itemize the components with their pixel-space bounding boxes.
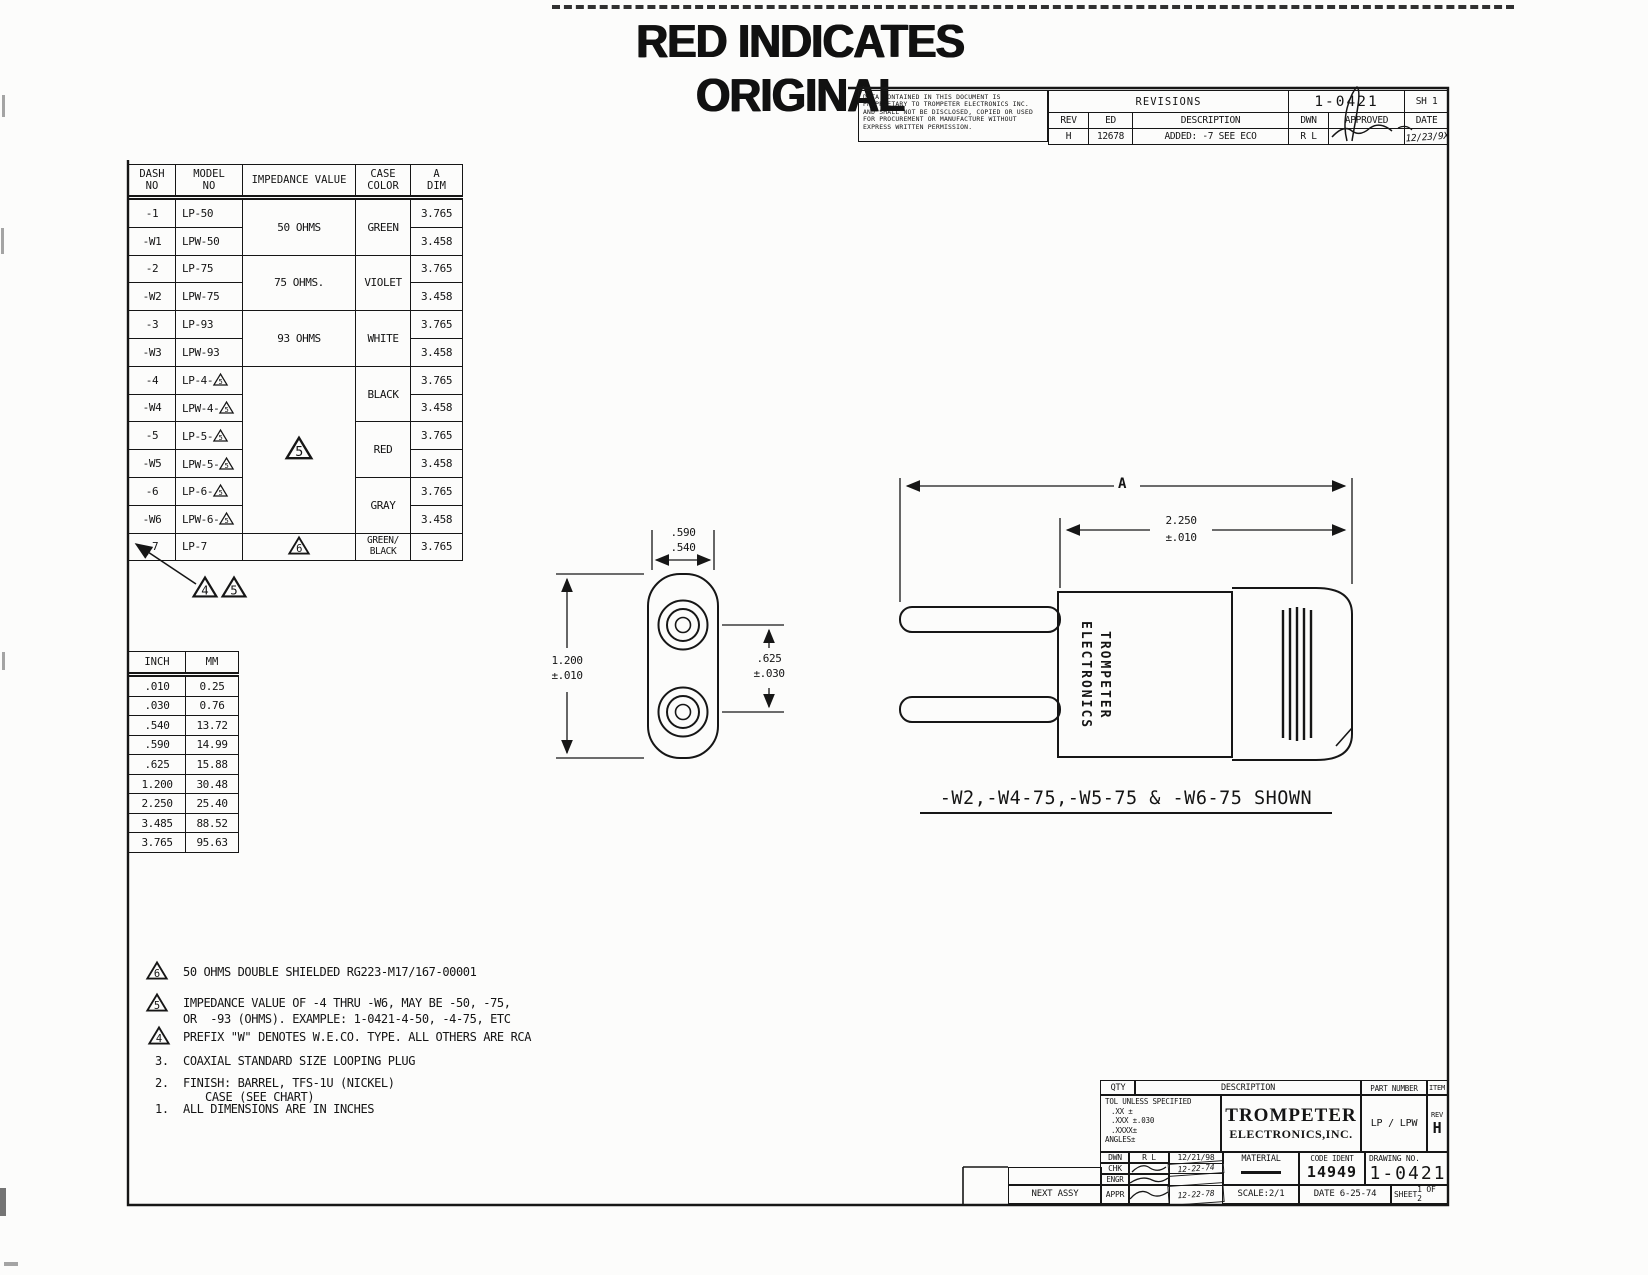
flag-triangle-5-icon: 5 bbox=[213, 373, 228, 386]
torn-edge-line bbox=[552, 5, 1514, 9]
dim-590: .590 bbox=[658, 526, 708, 539]
mm-cell: 95.63 bbox=[186, 833, 239, 853]
scan-artifact bbox=[4, 1262, 18, 1266]
model-cell: LPW-6-5 bbox=[176, 505, 243, 533]
rev-cell: REV H bbox=[1426, 1094, 1448, 1153]
model-cell: LP-4-5 bbox=[176, 366, 243, 394]
adim-cell: 3.765 bbox=[411, 477, 463, 505]
dash-cell: -W3 bbox=[129, 338, 176, 366]
table-row: 3.48588.52 bbox=[129, 813, 239, 833]
model-cell: LP-5-5 bbox=[176, 422, 243, 450]
dim-1200: 1.200 bbox=[543, 654, 591, 667]
code-ident-cell: CODE IDENT 14949 bbox=[1298, 1151, 1366, 1186]
impedance-cell: 93 OHMS bbox=[243, 311, 356, 367]
dash-cell: -W1 bbox=[129, 227, 176, 255]
col-header-inch: INCH bbox=[129, 652, 186, 675]
note-3-number: 3. bbox=[155, 1054, 169, 1068]
adim-cell: 3.765 bbox=[411, 366, 463, 394]
drawing-no-value: 1-0421 bbox=[1369, 1163, 1446, 1184]
shown-configurations-label: -W2,-W4-75,-W5-75 & -W6-75 SHOWN bbox=[920, 788, 1332, 814]
dash-cell: -3 bbox=[129, 311, 176, 339]
dash-cell: -W2 bbox=[129, 283, 176, 311]
drawing-no-cell: DRAWING NO. 1-0421 bbox=[1364, 1151, 1448, 1186]
table-row: .62515.88 bbox=[129, 755, 239, 775]
table-row: 2.25025.40 bbox=[129, 794, 239, 814]
col-header-dash: DASHNO bbox=[129, 165, 176, 198]
model-cell: LPW-75 bbox=[176, 283, 243, 311]
note-flag4: PREFIX "W" DENOTES W.E.CO. TYPE. ALL OTH… bbox=[183, 1030, 531, 1044]
dash-cell: -7 bbox=[129, 533, 176, 561]
date-cell: DATE 6-25-74 bbox=[1298, 1184, 1392, 1204]
model-cell: LPW-93 bbox=[176, 338, 243, 366]
eco-value: 12678 bbox=[1089, 129, 1133, 145]
table-row: 3.76595.63 bbox=[129, 833, 239, 853]
adim-cell: 3.458 bbox=[411, 394, 463, 422]
color-cell: BLACK bbox=[356, 366, 411, 422]
col-header: DATE bbox=[1405, 113, 1449, 129]
scan-artifact bbox=[1, 228, 4, 254]
table-row: -2 LP-75 75 OHMS. VIOLET 3.765 bbox=[129, 255, 463, 283]
col-header-adim: ADIM bbox=[411, 165, 463, 198]
table-header-row: DASHNO MODELNO IMPEDANCE VALUE CASECOLOR… bbox=[129, 165, 463, 198]
rev-value: H bbox=[1049, 129, 1089, 145]
appr-date: 12-22-78 bbox=[1167, 1182, 1224, 1206]
dash-cell: -1 bbox=[129, 198, 176, 228]
svg-text:4: 4 bbox=[201, 583, 208, 597]
svg-text:5: 5 bbox=[230, 583, 237, 597]
flag-triangle-4-icon: 4 bbox=[192, 576, 218, 598]
table-row: .59014.99 bbox=[129, 735, 239, 755]
color-cell: WHITE bbox=[356, 311, 411, 367]
inch-cell: .540 bbox=[129, 716, 186, 736]
adim-cell: 3.765 bbox=[411, 255, 463, 283]
model-cell: LP-7 bbox=[176, 533, 243, 561]
material-blank-line bbox=[1241, 1171, 1281, 1174]
impedance-cell: 5 bbox=[243, 366, 356, 533]
flag-triangle-5-icon: 5 bbox=[285, 436, 313, 460]
doc-number: 1-0421 bbox=[1289, 91, 1405, 113]
note-flag5-line1: IMPEDANCE VALUE OF -4 THRU -W6, MAY BE -… bbox=[183, 996, 511, 1010]
flag-triangle-5-icon: 5 bbox=[146, 993, 168, 1012]
inch-cell: .590 bbox=[129, 735, 186, 755]
col-header-case: CASECOLOR bbox=[356, 165, 411, 198]
flag-triangle-5-icon: 5 bbox=[213, 484, 228, 497]
mm-cell: 0.25 bbox=[186, 675, 239, 697]
model-cell: LPW-5-5 bbox=[176, 450, 243, 478]
impedance-cell: 50 OHMS bbox=[243, 198, 356, 256]
col-header: DESCRIPTION bbox=[1133, 113, 1289, 129]
rev-value: H bbox=[1433, 1119, 1442, 1137]
flag-triangle-5-icon: 5 bbox=[219, 457, 234, 470]
svg-text:5: 5 bbox=[219, 433, 223, 442]
inch-cell: 2.250 bbox=[129, 794, 186, 814]
flag-triangle-6-icon: 6 bbox=[288, 536, 310, 555]
appr-signature-cell bbox=[1128, 1184, 1170, 1204]
inch-cell: .030 bbox=[129, 696, 186, 716]
table-row: .0100.25 bbox=[129, 675, 239, 697]
company-block: TROMPETER ELECTRONICS,INC. bbox=[1220, 1094, 1362, 1153]
col-header: APPROVED bbox=[1329, 113, 1405, 129]
note-3: COAXIAL STANDARD SIZE LOOPING PLUG bbox=[183, 1054, 415, 1068]
scan-artifact bbox=[0, 1188, 6, 1216]
revisions-title: REVISIONS bbox=[1049, 91, 1289, 113]
dash-cell: -2 bbox=[129, 255, 176, 283]
dim-a-label: A bbox=[1118, 476, 1126, 492]
col-header: DWN bbox=[1289, 113, 1329, 129]
page-title: RED INDICATES ORIGINAL bbox=[550, 14, 1049, 76]
sheet-value: 1 OF 2 bbox=[1417, 1185, 1444, 1203]
table-row: .0300.76 bbox=[129, 696, 239, 716]
inch-cell: 3.485 bbox=[129, 813, 186, 833]
part-number-value: LP / LPW bbox=[1360, 1094, 1428, 1153]
mm-cell: 30.48 bbox=[186, 774, 239, 794]
note-1-number: 1. bbox=[155, 1102, 169, 1116]
adim-cell: 3.765 bbox=[411, 422, 463, 450]
col-header: ED bbox=[1089, 113, 1133, 129]
inch-cell: 1.200 bbox=[129, 774, 186, 794]
revisions-table: REVISIONS 1-0421 SH 1 REV ED DESCRIPTION… bbox=[1048, 90, 1449, 145]
color-cell: RED bbox=[356, 422, 411, 478]
dim-2250: 2.250 bbox=[1156, 514, 1206, 527]
col-header-model: MODELNO bbox=[176, 165, 243, 198]
svg-text:5: 5 bbox=[219, 488, 223, 497]
impedance-cell: 75 OHMS. bbox=[243, 255, 356, 311]
appr-label: APPR bbox=[1100, 1184, 1130, 1204]
tolerance-block: TOL UNLESS SPECIFIED .XX ± .XXX ±.030 .X… bbox=[1100, 1094, 1222, 1153]
rev-date: 12/23/9X bbox=[1404, 127, 1449, 146]
flag-triangle-5-icon: 5 bbox=[219, 401, 234, 414]
rev-dwn: R L bbox=[1289, 129, 1329, 145]
color-cell: GREEN/BLACK bbox=[356, 533, 411, 561]
company-name: TROMPETER bbox=[1225, 1105, 1356, 1127]
table-row: -7 LP-7 6 GREEN/BLACK 3.765 bbox=[129, 533, 463, 561]
svg-text:4: 4 bbox=[156, 1033, 162, 1045]
col-header: REV bbox=[1049, 113, 1089, 129]
table-row: .54013.72 bbox=[129, 716, 239, 736]
svg-text:5: 5 bbox=[225, 516, 229, 525]
dim-625: .625 bbox=[746, 652, 792, 665]
table-row: -4 LP-4-5 5 BLACK 3.765 bbox=[129, 366, 463, 394]
scan-artifact bbox=[2, 652, 5, 670]
note-1: ALL DIMENSIONS ARE IN INCHES bbox=[183, 1102, 374, 1116]
table-row: REV ED DESCRIPTION DWN APPROVED DATE bbox=[1049, 113, 1449, 129]
sheet-cell: SHEET1 OF 2 bbox=[1390, 1184, 1448, 1204]
proprietary-note: DATA CONTAINED IN THIS DOCUMENT IS PROPR… bbox=[858, 90, 1048, 142]
svg-text:5: 5 bbox=[225, 405, 229, 414]
inch-cell: .625 bbox=[129, 755, 186, 775]
mm-cell: 0.76 bbox=[186, 696, 239, 716]
approved-signature-cell bbox=[1329, 129, 1405, 145]
sheet-tag: SH 1 bbox=[1405, 91, 1449, 113]
company-name-2: ELECTRONICS,INC. bbox=[1229, 1127, 1352, 1142]
mm-cell: 14.99 bbox=[186, 735, 239, 755]
adim-cell: 3.458 bbox=[411, 227, 463, 255]
mm-cell: 88.52 bbox=[186, 813, 239, 833]
note-2-line1: FINISH: BARREL, TFS-1U (NICKEL) bbox=[183, 1076, 395, 1090]
flag-triangle-6-icon: 6 bbox=[146, 961, 168, 980]
adim-cell: 3.765 bbox=[411, 198, 463, 228]
adim-cell: 3.765 bbox=[411, 311, 463, 339]
model-cell: LP-6-5 bbox=[176, 477, 243, 505]
flag-triangle-5-icon: 5 bbox=[221, 576, 247, 598]
mm-cell: 15.88 bbox=[186, 755, 239, 775]
rev-description: ADDED: -7 SEE ECO bbox=[1133, 129, 1289, 145]
table-row: H 12678 ADDED: -7 SEE ECO R L 12/23/9X bbox=[1049, 129, 1449, 145]
color-cell: VIOLET bbox=[356, 255, 411, 311]
col-header-impedance: IMPEDANCE VALUE bbox=[243, 165, 356, 198]
material-cell: MATERIAL bbox=[1222, 1151, 1300, 1186]
flag-triangle-5-icon: 5 bbox=[213, 429, 228, 442]
adim-cell: 3.458 bbox=[411, 283, 463, 311]
note-flag5-line2: OR -93 (OHMS). EXAMPLE: 1-0421-4-50, -4-… bbox=[183, 1012, 511, 1026]
dash-cell: -W5 bbox=[129, 450, 176, 478]
dash-cell: -W6 bbox=[129, 505, 176, 533]
adim-cell: 3.765 bbox=[411, 533, 463, 561]
adim-cell: 3.458 bbox=[411, 450, 463, 478]
svg-text:5: 5 bbox=[154, 1000, 160, 1012]
dash-cell: -W4 bbox=[129, 394, 176, 422]
svg-text:5: 5 bbox=[225, 460, 229, 469]
model-cell: LPW-50 bbox=[176, 227, 243, 255]
flag-triangle-5-icon: 5 bbox=[219, 512, 234, 525]
mm-cell: 13.72 bbox=[186, 716, 239, 736]
impedance-cell: 6 bbox=[243, 533, 356, 561]
engineering-drawing-page: RED INDICATES ORIGINAL DATA CONTAINED IN… bbox=[0, 0, 1648, 1275]
model-cell: LP-93 bbox=[176, 311, 243, 339]
svg-text:5: 5 bbox=[219, 377, 223, 386]
inch-cell: 3.765 bbox=[129, 833, 186, 853]
dim-540: .540 bbox=[658, 541, 708, 554]
inch-cell: .010 bbox=[129, 675, 186, 697]
flag-triangle-4-icon: 4 bbox=[148, 1026, 170, 1045]
dash-cell: -5 bbox=[129, 422, 176, 450]
table-row: -3 LP-93 93 OHMS WHITE 3.765 bbox=[129, 311, 463, 339]
scan-artifact bbox=[2, 95, 5, 117]
code-ident-value: 14949 bbox=[1307, 1163, 1357, 1181]
table-header-row: INCH MM bbox=[129, 652, 239, 675]
dim-1200-tol: ±.010 bbox=[543, 669, 591, 682]
parts-table: DASHNO MODELNO IMPEDANCE VALUE CASECOLOR… bbox=[128, 164, 463, 561]
svg-text:5: 5 bbox=[295, 445, 302, 460]
svg-text:6: 6 bbox=[296, 543, 302, 555]
mm-cell: 25.40 bbox=[186, 794, 239, 814]
table-row: -1 LP-50 50 OHMS GREEN 3.765 bbox=[129, 198, 463, 228]
note-flag6: 50 OHMS DOUBLE SHIELDED RG223-M17/167-00… bbox=[183, 965, 476, 979]
dash-cell: -4 bbox=[129, 366, 176, 394]
color-cell: GREEN bbox=[356, 198, 411, 256]
model-cell: LPW-4-5 bbox=[176, 394, 243, 422]
inch-mm-table: INCH MM .0100.25 .0300.76 .54013.72 .590… bbox=[128, 651, 239, 853]
model-cell: LP-50 bbox=[176, 198, 243, 228]
table-row: REVISIONS 1-0421 SH 1 bbox=[1049, 91, 1449, 113]
next-assy-cell: NEXT ASSY bbox=[1008, 1184, 1102, 1204]
dim-625-tol: ±.030 bbox=[746, 667, 792, 680]
col-header-mm: MM bbox=[186, 652, 239, 675]
table-row: 1.20030.48 bbox=[129, 774, 239, 794]
connector-body-text: TROMPETERELECTRONICS bbox=[1076, 594, 1114, 756]
adim-cell: 3.458 bbox=[411, 505, 463, 533]
scale-cell: SCALE:2/1 bbox=[1222, 1184, 1300, 1204]
model-cell: LP-75 bbox=[176, 255, 243, 283]
color-cell: GRAY bbox=[356, 477, 411, 533]
dim-2250-tol: ±.010 bbox=[1156, 531, 1206, 544]
note-2-number: 2. bbox=[155, 1076, 169, 1090]
svg-text:6: 6 bbox=[154, 968, 160, 980]
adim-cell: 3.458 bbox=[411, 338, 463, 366]
dash-cell: -6 bbox=[129, 477, 176, 505]
